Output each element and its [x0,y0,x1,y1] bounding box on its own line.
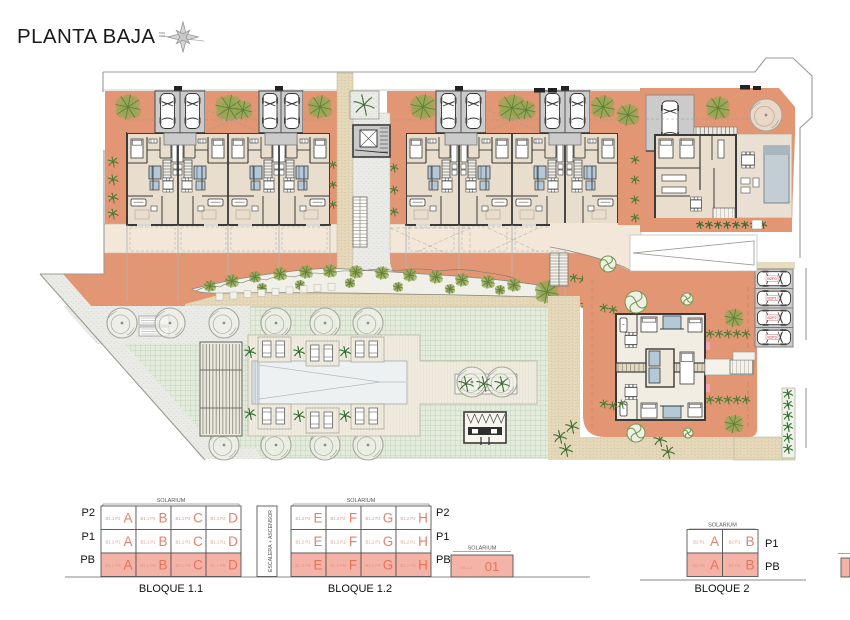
svg-text:H: H [418,534,428,549]
svg-text:PB: PB [765,561,780,573]
svg-text:F: F [349,557,357,572]
svg-text:P2: P2 [436,507,449,519]
svg-text:B2 PB: B2 PB [729,563,741,568]
svg-text:B1.1 P1: B1.1 P1 [176,539,192,544]
svg-text:A: A [710,534,719,549]
svg-text:01: 01 [485,559,499,574]
svg-text:A: A [710,557,719,572]
svg-text:P2: P2 [82,507,95,519]
svg-text:H: H [418,557,428,572]
svg-text:F: F [349,534,357,549]
svg-text:D: D [228,534,238,549]
svg-text:A: A [123,510,132,525]
svg-text:B2P1: B2P1 [767,297,776,301]
svg-text:D: D [228,557,238,572]
svg-text:G: G [383,534,394,549]
svg-text:BLOQUE 2: BLOQUE 2 [694,583,749,595]
svg-text:B1.2 P1: B1.2 P1 [296,539,312,544]
svg-text:B2P3: B2P3 [767,336,776,340]
svg-text:B2P0: B2P0 [767,277,776,281]
svg-text:B: B [745,557,754,572]
svg-text:G: G [383,557,394,572]
svg-text:D: D [228,510,238,525]
svg-text:B2 PB: B2 PB [693,563,705,568]
svg-text:VILLA: VILLA [460,565,472,570]
svg-text:B1.1 PB: B1.1 PB [140,563,156,568]
svg-text:B2 P1: B2 P1 [729,539,741,544]
svg-text:F: F [349,510,357,525]
svg-text:C: C [193,510,203,525]
svg-text:B1.1 P2: B1.1 P2 [176,516,192,521]
svg-text:SOLARIUM: SOLARIUM [157,498,186,504]
svg-text:B1.2 P1: B1.2 P1 [366,539,382,544]
svg-text:A: A [123,534,132,549]
svg-text:E: E [313,534,322,549]
svg-text:B1.2 P2: B1.2 P2 [366,516,382,521]
svg-text:B1.1 P2: B1.1 P2 [141,516,157,521]
svg-text:C: C [193,557,203,572]
svg-text:ESCALERA + ASCENSOR: ESCALERA + ASCENSOR [268,510,274,572]
svg-text:B1.1 P1: B1.1 P1 [141,539,157,544]
svg-text:SOLARIUM: SOLARIUM [708,523,737,529]
svg-text:G: G [383,510,394,525]
svg-text:B1.2 PB: B1.2 PB [400,563,416,568]
svg-text:B1.1 PB: B1.1 PB [175,563,191,568]
svg-text:P1: P1 [765,538,778,550]
svg-text:B: B [158,510,167,525]
svg-text:B1.1 PB: B1.1 PB [105,563,121,568]
svg-text:PB: PB [80,554,95,566]
svg-text:P1: P1 [82,531,95,543]
svg-text:P1: P1 [436,531,449,543]
svg-text:B1.2 PB: B1.2 PB [330,563,346,568]
svg-text:A: A [123,557,132,572]
svg-text:PB: PB [436,554,451,566]
svg-text:B2 P1: B2 P1 [693,539,705,544]
svg-text:E: E [313,557,322,572]
svg-text:B1.1 P1: B1.1 P1 [106,539,122,544]
svg-text:B: B [158,534,167,549]
svg-text:H: H [418,510,428,525]
svg-text:B1.2 P2: B1.2 P2 [401,516,417,521]
svg-text:B1.1 P2: B1.1 P2 [211,516,227,521]
svg-text:B1.2 P2: B1.2 P2 [331,516,347,521]
svg-text:B: B [158,557,167,572]
svg-text:BLOQUE 1.1: BLOQUE 1.1 [139,583,203,595]
svg-text:C: C [193,534,203,549]
svg-text:B2P2: B2P2 [767,316,776,320]
svg-text:B1.1 P2: B1.1 P2 [106,516,122,521]
svg-text:B: B [745,534,754,549]
svg-text:B1.1 PB: B1.1 PB [210,563,226,568]
svg-text:E: E [313,510,322,525]
svg-text:B1.2 P1: B1.2 P1 [401,539,417,544]
svg-text:BLOQUE 1.2: BLOQUE 1.2 [328,583,392,595]
svg-text:B1.2 P1: B1.2 P1 [331,539,347,544]
svg-text:B1.2 PB: B1.2 PB [295,563,311,568]
svg-text:SOLARIUM: SOLARIUM [347,498,376,504]
svg-text:B1.1 P1: B1.1 P1 [211,539,227,544]
svg-text:PLANTA BAJA: PLANTA BAJA [17,25,155,48]
svg-text:SOLARIUM: SOLARIUM [468,546,497,552]
svg-text:B1.2 PB: B1.2 PB [365,563,381,568]
svg-text:B1.2 P2: B1.2 P2 [296,516,312,521]
